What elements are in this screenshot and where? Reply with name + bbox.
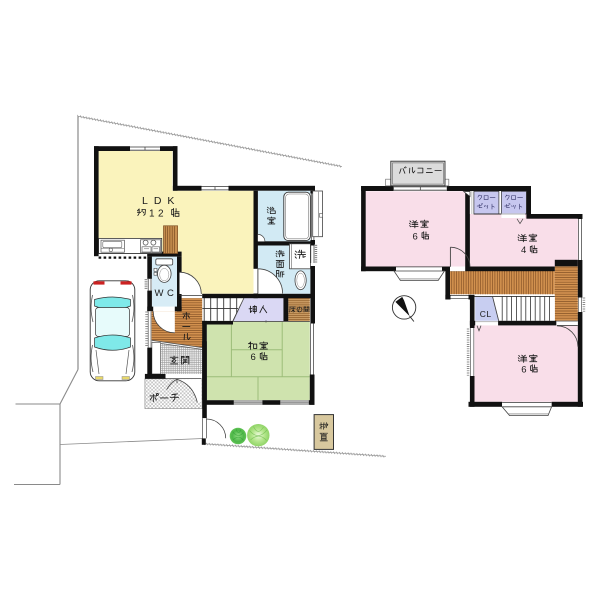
svg-text:4: 4 xyxy=(521,245,526,256)
svg-text:LDK: LDK xyxy=(142,195,180,207)
svg-text:12: 12 xyxy=(149,208,167,219)
svg-text:6: 6 xyxy=(521,364,526,375)
svg-text:WC: WC xyxy=(155,288,178,299)
svg-text:CL: CL xyxy=(480,309,492,319)
svg-text:6: 6 xyxy=(251,352,256,363)
svg-text:6: 6 xyxy=(413,231,418,242)
